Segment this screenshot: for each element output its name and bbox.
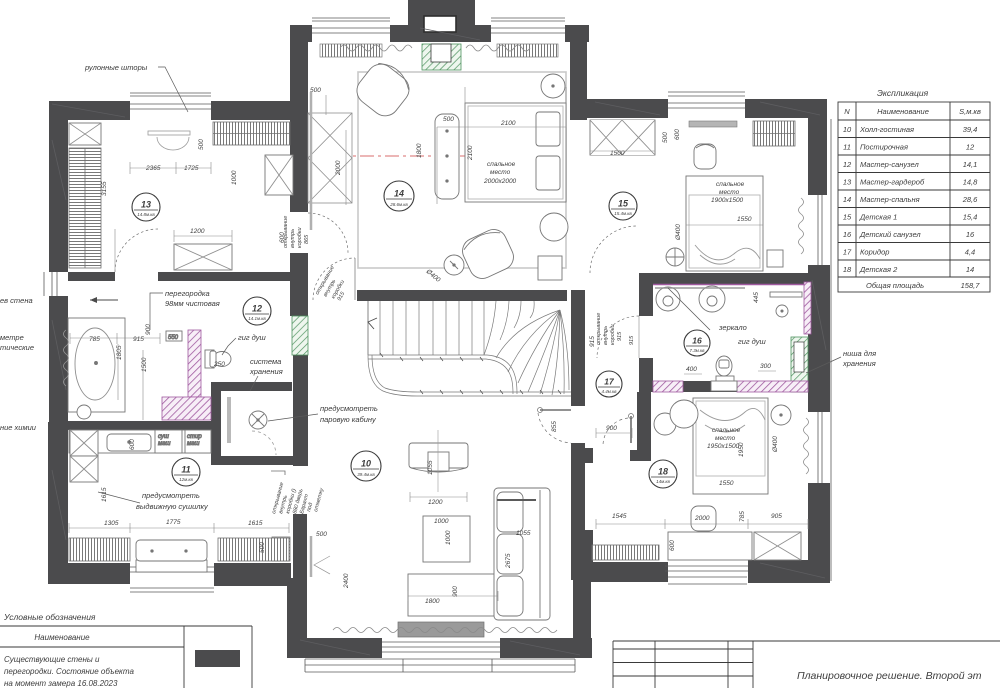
svg-text:600: 600 [129,439,136,450]
svg-text:суш: суш [158,434,169,440]
svg-text:865: 865 [304,234,310,244]
svg-text:открывание: открывание [283,216,289,248]
svg-text:300: 300 [760,363,771,370]
svg-text:855: 855 [551,421,558,432]
svg-text:коробки: коробки [297,227,303,248]
svg-text:предусмотреть: предусмотреть [320,404,378,413]
svg-text:метре: метре [0,333,24,342]
svg-text:12: 12 [843,160,852,169]
svg-text:маш: маш [158,441,170,447]
svg-text:тические: тические [0,343,34,352]
svg-text:1545: 1545 [612,513,627,520]
svg-text:хранения: хранения [249,367,283,376]
svg-text:место: место [719,189,740,196]
svg-text:Ø400: Ø400 [772,436,779,453]
svg-text:16: 16 [692,336,702,346]
svg-text:1725: 1725 [184,165,199,172]
svg-text:перегородки. Состояние объекта: перегородки. Состояние объекта [4,667,134,676]
svg-text:1615: 1615 [248,520,263,527]
svg-text:12: 12 [252,304,262,314]
svg-text:915: 915 [133,336,144,343]
svg-text:Детская 2: Детская 2 [859,265,898,274]
svg-text:14.1м.кв: 14.1м.кв [248,316,266,321]
svg-text:Детская 1: Детская 1 [859,213,897,222]
svg-text:10: 10 [361,459,371,469]
svg-text:15,4: 15,4 [963,213,978,222]
svg-text:4,4: 4,4 [965,248,975,257]
svg-text:1800: 1800 [425,598,440,605]
svg-text:12м.кв: 12м.кв [179,477,193,482]
svg-text:1775: 1775 [166,519,181,526]
svg-text:915: 915 [629,335,635,345]
svg-text:Планировочное решение. Второй: Планировочное решение. Второй эт [797,670,982,682]
svg-text:1550: 1550 [737,216,752,223]
svg-text:рулонные шторы: рулонные шторы [84,63,148,72]
svg-text:2675: 2675 [505,553,512,569]
svg-text:предусмотреть: предусмотреть [142,491,200,500]
svg-text:600: 600 [674,129,681,140]
svg-text:1000: 1000 [231,170,238,185]
svg-text:Существующие стены и: Существующие стены и [4,655,100,664]
svg-text:500: 500 [259,542,266,553]
svg-text:14: 14 [394,189,404,199]
svg-text:Мастер-санузел: Мастер-санузел [860,160,919,169]
svg-text:14,8: 14,8 [963,178,978,187]
svg-text:внутрь: внутрь [290,229,296,248]
svg-text:18: 18 [658,467,668,477]
svg-text:1900х1500: 1900х1500 [711,197,744,204]
svg-text:500: 500 [310,87,321,94]
svg-text:17: 17 [843,248,852,257]
svg-text:785: 785 [739,511,746,522]
svg-text:1055: 1055 [427,460,434,475]
svg-text:2000: 2000 [694,515,710,522]
svg-text:1800: 1800 [416,143,423,158]
svg-text:место: место [715,435,736,442]
svg-text:17: 17 [604,377,615,387]
svg-text:2100: 2100 [467,145,474,161]
svg-text:спальное: спальное [712,427,741,434]
svg-text:Наименование: Наименование [877,107,929,116]
svg-text:спальное: спальное [716,181,745,188]
svg-text:коробки: коробки [610,324,616,345]
svg-text:900: 900 [145,324,152,335]
svg-text:гиг душ: гиг душ [238,333,266,342]
svg-text:7.3м.кв: 7.3м.кв [689,348,705,353]
svg-text:14: 14 [966,265,974,274]
svg-text:16: 16 [843,230,852,239]
svg-text:Экспликация: Экспликация [877,88,929,98]
svg-text:система: система [250,357,281,366]
svg-text:500: 500 [662,132,669,143]
svg-text:открывание: открывание [596,313,602,345]
svg-text:перегородка: перегородка [165,289,210,298]
svg-text:Постирочная: Постирочная [860,143,908,152]
svg-text:гиг душ: гиг душ [738,337,766,346]
svg-text:2100: 2100 [500,120,516,127]
svg-text:Детский санузел: Детский санузел [859,230,921,239]
svg-text:15.4м.кв: 15.4м.кв [614,211,632,216]
svg-text:хранения: хранения [842,359,876,368]
svg-text:600: 600 [669,540,676,551]
svg-text:15: 15 [843,213,852,222]
svg-text:Коридор: Коридор [860,248,889,257]
svg-text:на момент замера 16.08.2023: на момент замера 16.08.2023 [4,679,118,688]
svg-text:158,7: 158,7 [961,281,981,290]
svg-text:спальное: спальное [487,161,516,168]
svg-text:Наименование: Наименование [34,633,90,642]
svg-text:ев стена: ев стена [0,296,33,305]
svg-text:1500: 1500 [141,357,148,372]
svg-text:1055: 1055 [516,530,531,537]
svg-text:500: 500 [316,531,327,538]
svg-text:500: 500 [198,139,205,150]
svg-text:паровую кабину: паровую кабину [320,415,377,424]
svg-text:39,4: 39,4 [963,125,978,134]
svg-text:16: 16 [966,230,975,239]
svg-text:445: 445 [753,292,760,303]
svg-text:1805: 1805 [116,345,123,360]
svg-text:Условные обозначения: Условные обозначения [3,612,96,622]
svg-text:выдвижную сушилку: выдвижную сушилку [136,502,209,511]
svg-text:905: 905 [771,513,782,520]
svg-text:28.6м.кв: 28.6м.кв [389,202,408,207]
svg-text:900: 900 [606,425,617,432]
svg-text:4.4м.кв: 4.4м.кв [601,389,617,394]
svg-text:915: 915 [589,336,596,347]
svg-text:915: 915 [617,331,623,341]
svg-text:1000: 1000 [434,518,449,525]
svg-text:1305: 1305 [104,520,119,527]
svg-text:N: N [844,107,850,116]
svg-text:1200: 1200 [428,499,443,506]
svg-text:1950х1500: 1950х1500 [707,443,740,450]
svg-text:15: 15 [618,199,629,209]
svg-text:1200: 1200 [190,228,205,235]
svg-text:13: 13 [843,178,852,187]
svg-text:2000: 2000 [335,160,342,176]
svg-text:место: место [490,169,511,176]
svg-text:500: 500 [443,116,454,123]
svg-text:550: 550 [168,335,179,341]
svg-text:14: 14 [843,195,851,204]
svg-text:14.8м.кв: 14.8м.кв [137,212,155,217]
svg-text:1550: 1550 [719,480,734,487]
svg-text:2000х2000: 2000х2000 [483,178,517,185]
svg-text:14м.кв: 14м.кв [656,479,670,484]
svg-text:ние химии: ние химии [0,423,37,432]
svg-text:Общая площадь: Общая площадь [866,281,924,290]
svg-text:11: 11 [181,465,190,475]
svg-text:1000: 1000 [445,530,452,545]
svg-text:Холл-гостиная: Холл-гостиная [859,125,914,134]
svg-text:маш: маш [187,441,199,447]
svg-text:250: 250 [213,361,225,368]
svg-text:98мм чистовая: 98мм чистовая [165,299,220,308]
svg-text:785: 785 [89,336,100,343]
svg-text:900: 900 [452,586,459,597]
svg-text:14,1: 14,1 [963,160,978,169]
svg-text:зеркало: зеркало [718,323,747,332]
svg-text:Мастер-спальня: Мастер-спальня [860,195,920,204]
svg-text:S,м.кв: S,м.кв [959,107,981,116]
svg-text:Ø400: Ø400 [675,224,682,241]
svg-text:ниша для: ниша для [843,349,876,358]
svg-text:11: 11 [843,143,851,152]
svg-text:10: 10 [843,125,852,134]
svg-text:400: 400 [686,366,697,373]
svg-text:стир: стир [187,434,202,440]
svg-text:2400: 2400 [343,573,350,589]
svg-text:39.4м.кв: 39.4м.кв [357,472,375,477]
svg-text:28,6: 28,6 [962,195,978,204]
svg-text:Мастер-гардероб: Мастер-гардероб [860,178,925,187]
svg-text:внутрь: внутрь [603,326,609,345]
svg-text:3155: 3155 [101,181,108,196]
svg-text:18: 18 [843,265,852,274]
svg-text:12: 12 [966,143,975,152]
svg-text:13: 13 [141,200,151,210]
svg-text:2365: 2365 [145,165,161,172]
